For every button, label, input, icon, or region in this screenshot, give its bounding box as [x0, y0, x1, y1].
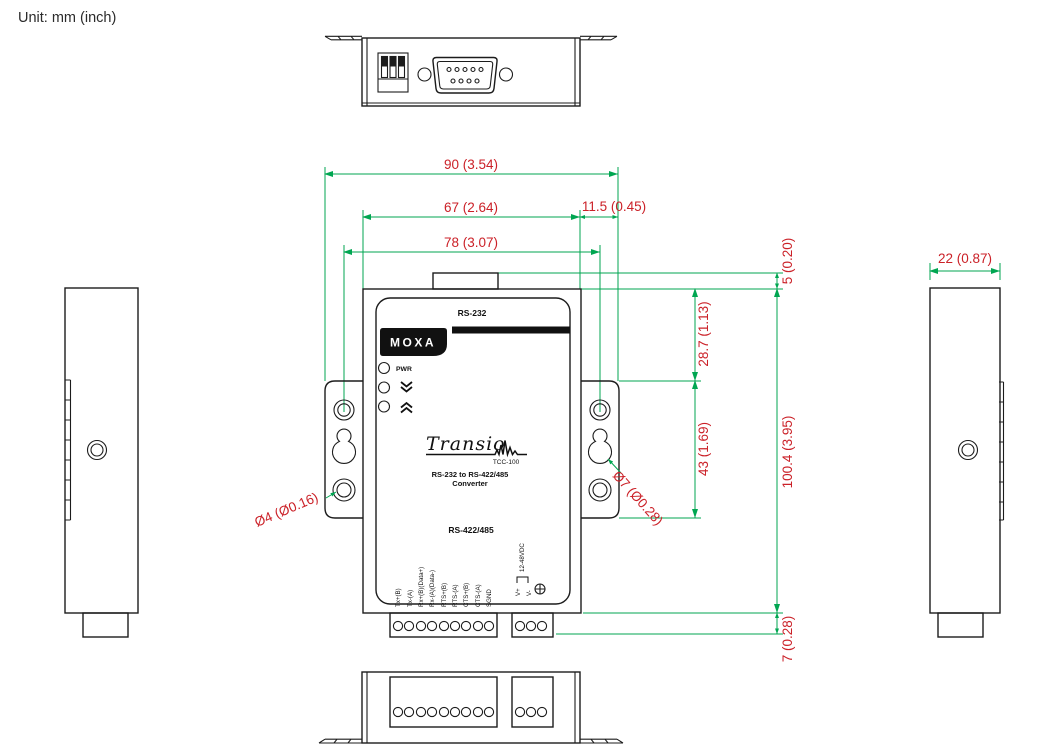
unit-label: Unit: mm (inch) — [18, 10, 116, 26]
dim-ear-height: 43 (1.69) — [696, 422, 711, 476]
dim-overall-width: 90 (3.54) — [444, 157, 498, 172]
dim-terminal-depth: 7 (0.28) — [780, 616, 795, 663]
terminal-label: CTS+(B) — [463, 583, 470, 607]
terminal-label: Tx+(B) — [395, 588, 402, 607]
terminal-label: RTS+(B) — [441, 583, 448, 607]
v-plus-label: V+ — [515, 588, 522, 596]
description-line1: RS-232 to RS-422/485 — [432, 470, 509, 479]
model-label: TCC-100 — [493, 459, 520, 466]
v-minus-label: V- — [526, 590, 533, 596]
description-line2: Converter — [452, 479, 488, 488]
terminal-label: Tx-(A) — [407, 590, 414, 607]
terminal-label: CTS-(A) — [475, 584, 482, 607]
terminal-label: SGND — [486, 589, 493, 607]
power-led-label: PWR — [396, 366, 412, 373]
brand-label: MOXA — [390, 336, 436, 350]
dim-mount-hole-spacing: 78 (3.07) — [444, 235, 498, 250]
dim-depth: 22 (0.87) — [938, 251, 992, 266]
dimension-drawing: Unit: mm (inch) — [0, 0, 1049, 754]
product-name-label: Transio — [426, 433, 506, 455]
label-bar — [452, 327, 570, 334]
dim-ear-overhang: 11.5 (0.45) — [582, 199, 646, 214]
voltage-range-label: 12-48VDC — [519, 543, 526, 572]
background — [0, 0, 1049, 754]
moxa-logo: MOXA — [380, 328, 447, 356]
terminal-label: RTS-(A) — [452, 584, 459, 607]
terminal-label: Rx+(B)(Data+) — [418, 567, 425, 607]
interface-top-label: RS-232 — [458, 308, 487, 318]
dim-body-width: 67 (2.64) — [444, 200, 498, 215]
interface-bottom-label: RS-422/485 — [448, 525, 494, 535]
dim-connector-protrusion: 5 (0.20) — [780, 238, 795, 285]
dim-top-to-ear: 28.7 (1.13) — [696, 301, 711, 366]
terminal-label: Rx-(A)(Data-) — [429, 570, 436, 607]
ground-screw-icon — [535, 584, 545, 594]
dim-body-height: 100.4 (3.95) — [780, 416, 795, 489]
drawing-page: Unit: mm (inch) — [0, 0, 1049, 754]
